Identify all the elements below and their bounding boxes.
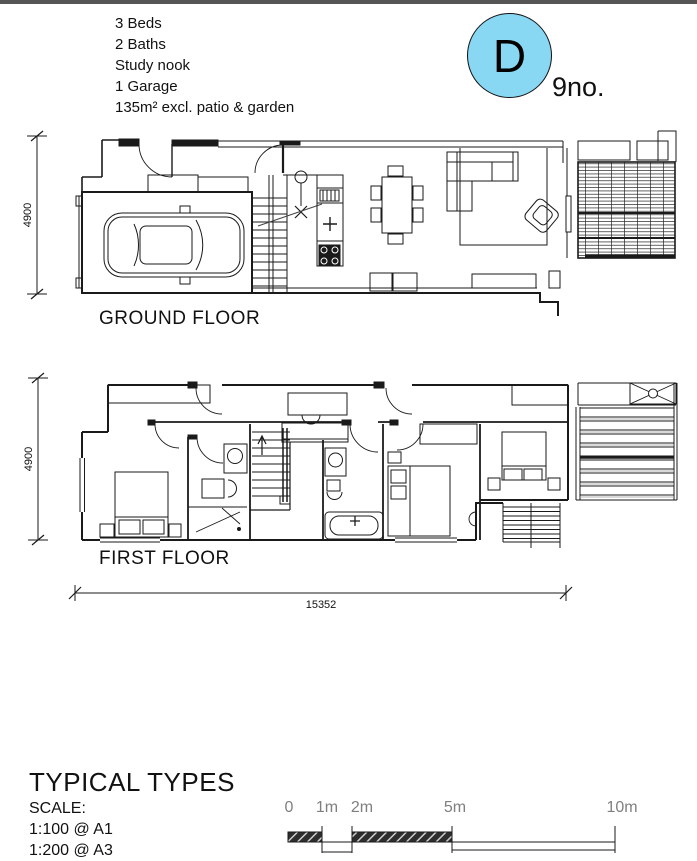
first-floor-plan: FIRST FLOOR — [79, 382, 677, 569]
svg-text:4900: 4900 — [22, 203, 34, 227]
bedroom1 — [100, 472, 181, 537]
study-nook-desk — [288, 393, 347, 424]
bathtub — [325, 512, 383, 539]
scalebar-label-0: 0 — [285, 799, 294, 816]
bedroom3 — [488, 432, 560, 490]
first-floor-label: FIRST FLOOR — [99, 548, 230, 569]
ensuite-bathroom — [188, 444, 247, 532]
scalebar-label-10m: 10m — [606, 799, 637, 816]
gf-garage — [76, 192, 252, 293]
gf-bottom-wall — [252, 271, 560, 316]
gf-kitchen — [317, 175, 343, 266]
skylight — [630, 383, 676, 404]
scalebar-label-1m: 1m — [316, 799, 338, 816]
scalebar-label-5m: 5m — [444, 799, 466, 816]
gf-stairs — [252, 175, 317, 293]
ff-external-stairs — [503, 503, 560, 548]
scale-block: SCALE: 1:100 @ A1 1:200 @ A3 — [29, 798, 113, 861]
svg-text:4900: 4900 — [23, 447, 35, 471]
drawing-sheet: 3 Beds 2 Baths Study nook 1 Garage 135m²… — [0, 0, 697, 859]
floor-plan-drawing: GROUND FLOOR — [0, 0, 697, 859]
scale-line-a3: 1:200 @ A3 — [29, 840, 113, 861]
ff-side-dimension: 4900 — [23, 373, 48, 545]
ff-top-strip — [108, 385, 568, 442]
ground-floor-label: GROUND FLOOR — [99, 308, 260, 329]
ff-interior-walls — [188, 424, 480, 540]
armchair — [523, 197, 560, 234]
louvre-slats — [580, 408, 674, 497]
scale-bar: 0 1m 2m 5m 10m — [285, 799, 638, 853]
ff-corridor-wall — [148, 420, 568, 452]
dining-table — [371, 166, 423, 244]
ground-floor-plan: GROUND FLOOR — [76, 131, 676, 329]
gf-side-dimension: 4900 — [22, 131, 47, 299]
scale-line-a1: 1:100 @ A1 — [29, 819, 113, 840]
louvre-roof — [576, 383, 677, 500]
gf-entry-door — [255, 141, 300, 173]
gf-entry-walls — [82, 139, 563, 192]
bottom-dimension: 15352 — [69, 585, 572, 611]
bathroom2 — [325, 448, 383, 539]
gf-deck — [578, 141, 675, 258]
scalebar-label-2m: 2m — [351, 799, 373, 816]
living-room — [447, 148, 560, 245]
svg-text:15352: 15352 — [306, 599, 337, 611]
car — [104, 206, 244, 284]
bedroom2 — [388, 424, 477, 536]
sheet-title: TYPICAL TYPES — [29, 767, 235, 798]
scale-heading: SCALE: — [29, 798, 113, 819]
